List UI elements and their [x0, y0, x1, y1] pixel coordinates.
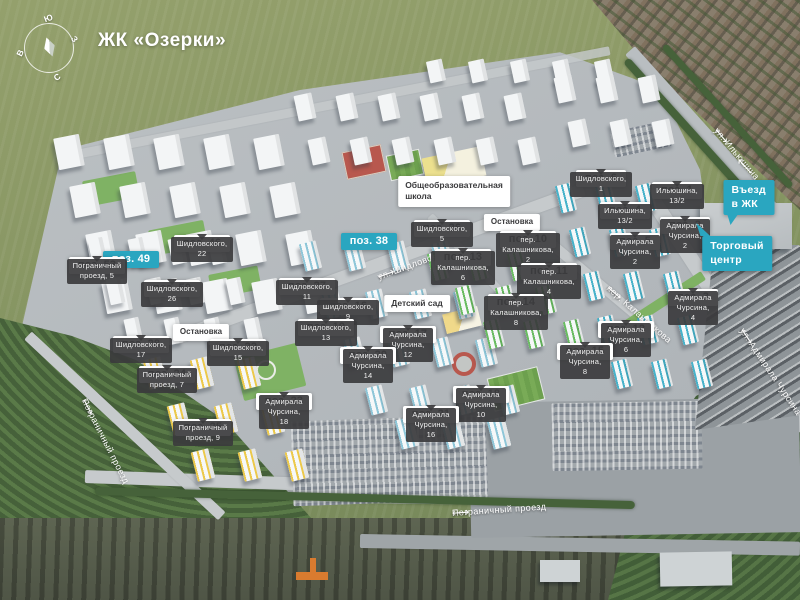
label-pointer	[233, 338, 243, 349]
label-pointer	[630, 232, 640, 243]
label-pointer	[197, 234, 207, 245]
label-pointer	[426, 405, 436, 416]
label-pointer	[343, 297, 353, 308]
promo-pointer	[728, 215, 738, 232]
label-pointer	[596, 169, 606, 180]
label-pointer	[302, 277, 312, 288]
label-pointer	[680, 216, 690, 227]
label-pointer	[279, 392, 289, 403]
position-number: поз. 38	[341, 233, 397, 250]
label-pointer	[621, 320, 631, 331]
label-pointer	[458, 248, 468, 259]
label-pointer	[167, 279, 177, 290]
label-pointer	[198, 418, 208, 429]
label-pointer	[403, 325, 413, 336]
label-pointer	[544, 262, 554, 273]
label-pointer	[162, 365, 172, 376]
info-label: Общеобразовательная школа	[398, 176, 510, 207]
promo-label: Торговый центр	[702, 236, 772, 271]
street-arrow-icon: ⟶	[452, 506, 470, 519]
label-pointer	[523, 230, 533, 241]
promo-label: Въезд в ЖК	[724, 180, 775, 215]
label-pointer	[476, 385, 486, 396]
label-pointer	[620, 201, 630, 212]
page-title: ЖК «Озерки»	[98, 30, 226, 52]
label-pointer	[511, 293, 521, 304]
label-pointer	[688, 288, 698, 299]
street-arrow-icon: ⟶	[376, 265, 397, 282]
labels-layer: поз. 1Ильюшина, 13/2поз. 2Адмирала Чурси…	[0, 0, 800, 600]
label-pointer	[363, 346, 373, 357]
info-label: Детский сад	[384, 295, 450, 312]
label-pointer	[580, 342, 590, 353]
site-plan: поз. 1Ильюшина, 13/2поз. 2Адмирала Чурси…	[0, 0, 800, 600]
label-pointer	[672, 181, 682, 192]
label-pointer	[437, 219, 447, 230]
info-label: Остановка	[484, 214, 540, 231]
label-pointer	[321, 318, 331, 329]
label-pointer	[136, 335, 146, 346]
label-pointer	[92, 256, 102, 267]
